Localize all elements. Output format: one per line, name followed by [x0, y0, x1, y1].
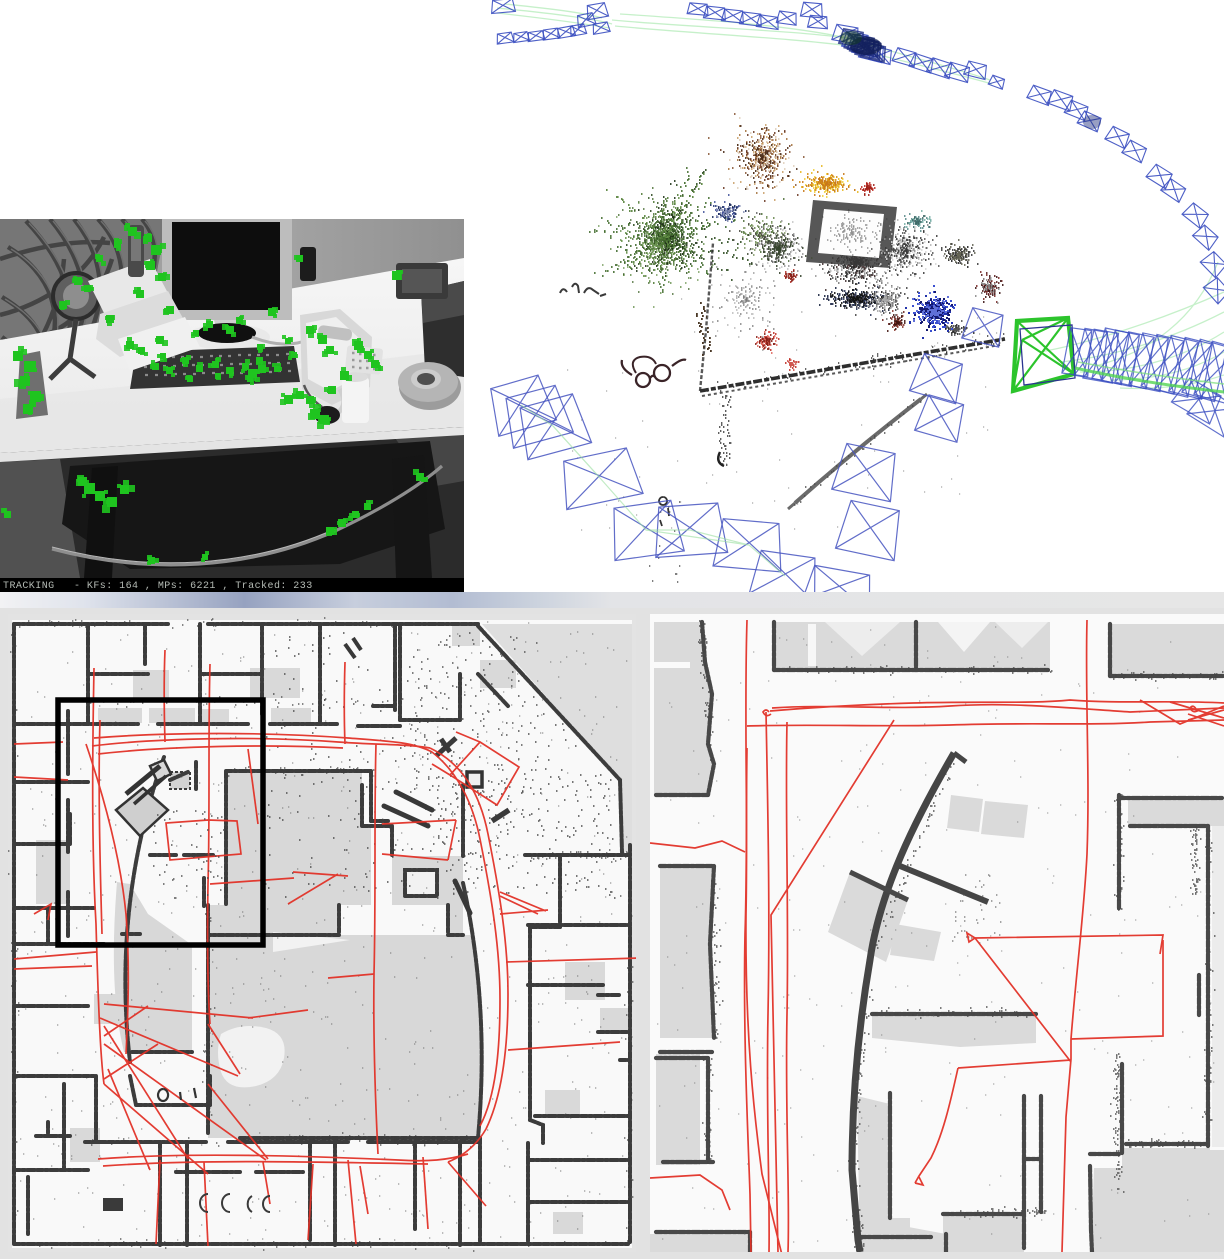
svg-text:TRACKING - KFs: 164 , MPs: 6: TRACKING - KFs: 164 , MPs: 6221 , Tracke…	[3, 580, 313, 592]
